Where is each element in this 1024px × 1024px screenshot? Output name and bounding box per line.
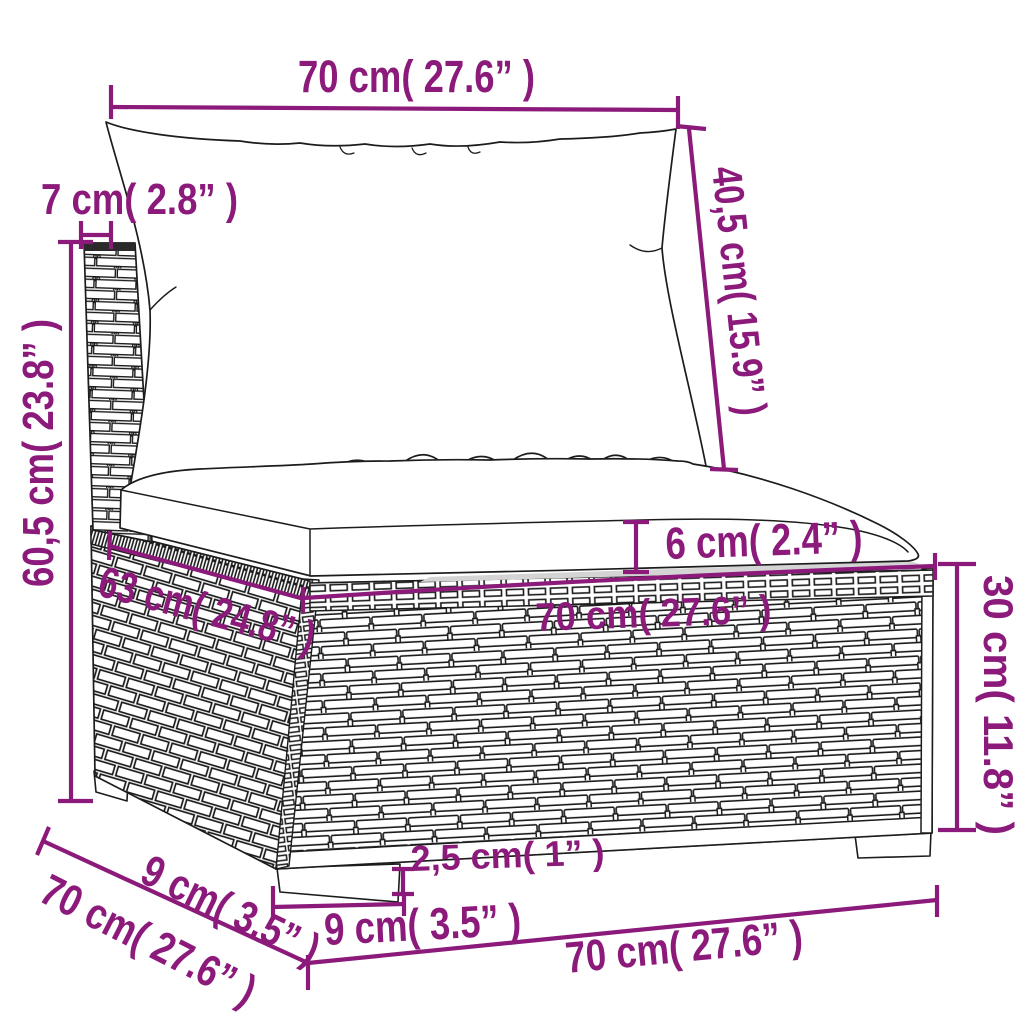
svg-text:7 cm( 2.8” ): 7 cm( 2.8” ) [41, 175, 238, 224]
svg-text:70 cm( 27.6” ): 70 cm( 27.6” ) [298, 51, 535, 102]
svg-text:2,5 cm( 1” ): 2,5 cm( 1” ) [410, 831, 605, 879]
svg-text:9 cm( 3.5” ): 9 cm( 3.5” ) [323, 894, 522, 955]
svg-text:60,5 cm( 23.8” ): 60,5 cm( 23.8” ) [14, 319, 63, 587]
svg-text:6 cm( 2.4” ): 6 cm( 2.4” ) [665, 511, 864, 569]
svg-text:30 cm( 11.8” ): 30 cm( 11.8” ) [975, 575, 1022, 835]
svg-text:70 cm( 27.6” ): 70 cm( 27.6” ) [535, 588, 772, 640]
